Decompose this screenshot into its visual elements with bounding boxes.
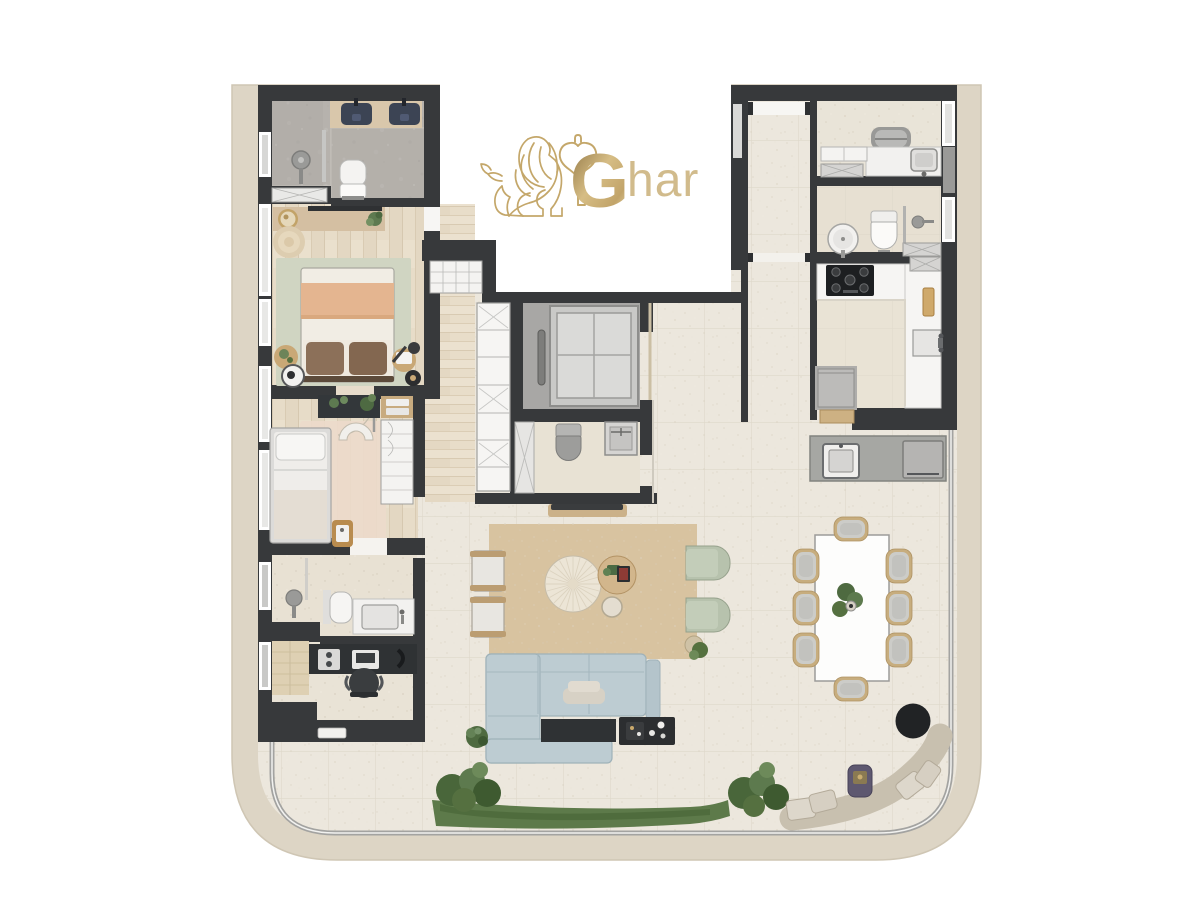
svg-text:har: har	[627, 154, 699, 207]
svg-text:G: G	[570, 139, 629, 224]
